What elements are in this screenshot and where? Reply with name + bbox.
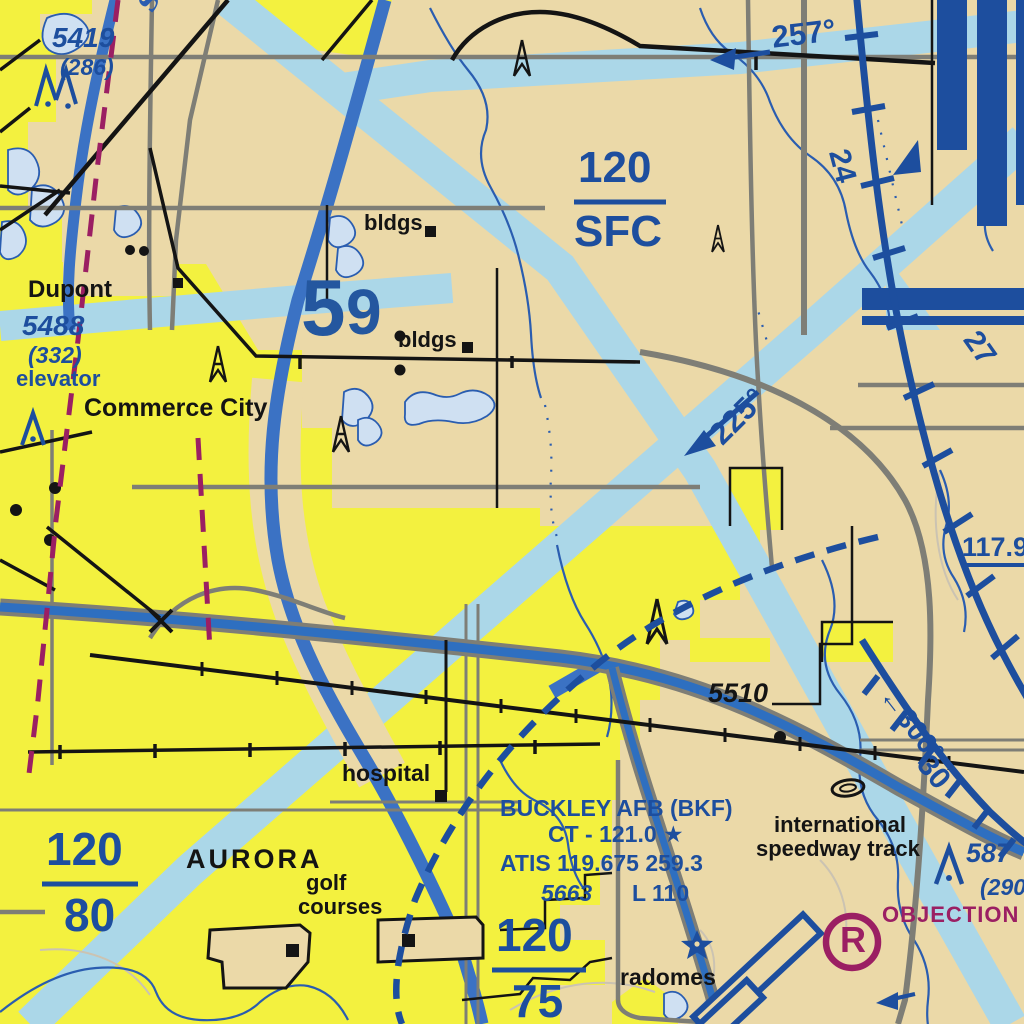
airspace-ceiling-120-80: 120 (46, 826, 123, 872)
landmark-golf: golf (306, 872, 346, 894)
airspace-ceiling-120-sfc: 120 (578, 146, 651, 190)
place-dupont: Dupont (28, 278, 112, 302)
obstacle-msl-5419: 5419 (52, 24, 114, 52)
obstacle-note-elevator: elevator (16, 368, 100, 390)
landmark-hospital: hospital (342, 762, 430, 785)
obstacle-msl-5488: 5488 (22, 312, 84, 340)
place-commerce-city: Commerce City (84, 396, 267, 421)
landmark-bldgs-north: bldgs (364, 212, 423, 234)
sectional-chart[interactable]: SO5419(286)Dupont5488(332)elevatorCommer… (0, 0, 1024, 1024)
airport-ct-frequency: CT - 121.0 ★ (548, 823, 684, 846)
obstacle-msl-587: 587 (966, 840, 1011, 867)
flyway-heading-306: ←306° (874, 682, 949, 767)
vor-frequency: 117.9 (962, 534, 1024, 567)
restricted-r-symbol: R (840, 922, 866, 958)
landmark-bldgs-south: bldgs (398, 329, 457, 351)
flyway-heading-257: 257° (770, 14, 837, 53)
warning-objection: OBJECTION (882, 904, 1019, 926)
compass-label-24: 24 (823, 146, 861, 186)
airspace-floor-75: 75 (512, 978, 563, 1024)
spot-elevation-5510: 5510 (708, 680, 768, 707)
mef-hundreds: 9 (346, 280, 382, 344)
river-label-so: SO (134, 0, 180, 15)
airspace-ceiling-120-75: 120 (496, 912, 573, 958)
airport-name: BUCKLEY AFB (BKF) (500, 797, 733, 820)
place-aurora: AURORA (186, 846, 323, 873)
mef-thousands: 5 (301, 268, 346, 348)
airport-lighting-length: L 110 (632, 882, 689, 905)
obstacle-agl-286: (286) (60, 56, 114, 79)
flyway-heading-225: 225° (704, 383, 771, 450)
map-labels: SO5419(286)Dupont5488(332)elevatorCommer… (0, 0, 1024, 1024)
landmark-international: international (774, 814, 906, 836)
airport-atis: ATIS 119.675 259.3 (500, 852, 703, 875)
airspace-floor-80: 80 (64, 892, 115, 938)
obstacle-agl-290: (290 (980, 876, 1024, 899)
compass-label-27: 27 (957, 326, 1001, 371)
airspace-floor-sfc: SFC (574, 210, 662, 254)
landmark-courses: courses (298, 896, 382, 918)
landmark-radomes: radomes (620, 966, 716, 989)
airport-elevation: 5663 (541, 882, 592, 905)
obstacle-agl-332: (332) (28, 344, 82, 367)
landmark-speedway-track: speedway track (756, 838, 920, 860)
